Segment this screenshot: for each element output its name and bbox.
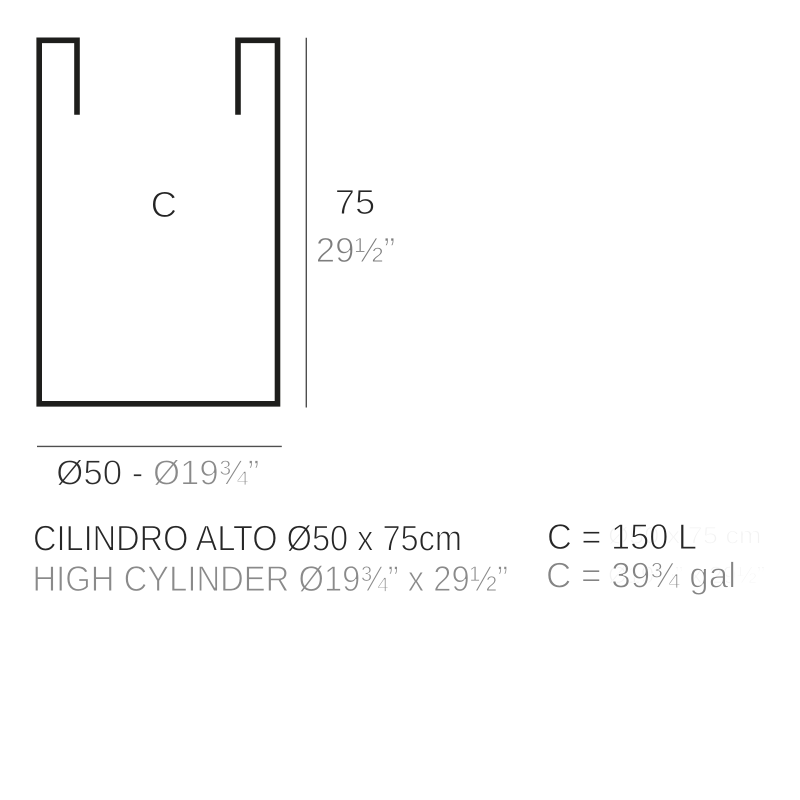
svg-text:75: 75 xyxy=(335,183,376,222)
svg-text:CILINDRO ALTO Ø50 x 75cm: CILINDRO ALTO Ø50 x 75cm xyxy=(33,518,462,559)
svg-text:C = 39¾ gal: C = 39¾ gal xyxy=(546,555,736,596)
svg-text:C = 150 L: C = 150 L xyxy=(547,516,697,557)
svg-text:HIGH CYLINDER Ø19¾” x 29½”: HIGH CYLINDER Ø19¾” x 29½” xyxy=(33,558,509,599)
svg-text:Ø50 - Ø19¾”: Ø50 - Ø19¾” xyxy=(56,453,259,492)
svg-text:C: C xyxy=(151,184,177,225)
svg-text:29½”: 29½” xyxy=(316,231,396,270)
